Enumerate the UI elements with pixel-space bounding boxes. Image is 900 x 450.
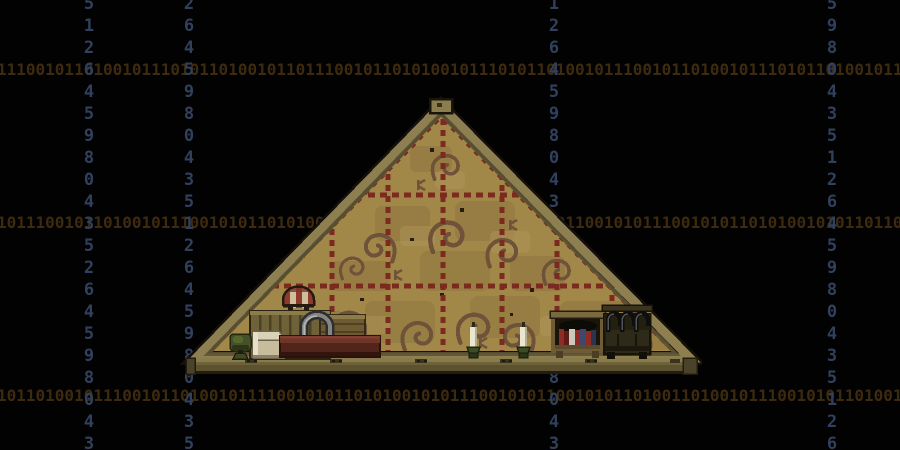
binary-row-bottom: 1011010010111001011010010111100101011010… <box>0 387 900 405</box>
red-bed[interactable] <box>280 336 380 357</box>
game-viewport: 1110010110100101110101101001011011100101… <box>0 0 900 450</box>
bookshelf[interactable] <box>550 311 605 358</box>
striped-canopy[interactable] <box>283 286 314 310</box>
tent-apex-cap <box>430 99 452 113</box>
books <box>559 329 596 345</box>
tent-floor <box>186 358 697 374</box>
binary-row-top: 1110010110100101110101101001011011100101… <box>0 61 900 79</box>
digit-column-1: 512645980435264598043512 <box>79 0 99 450</box>
digit-column-4: 598043512645980435126459 <box>822 0 842 450</box>
hook-rack[interactable] <box>602 305 652 359</box>
tent-structure <box>180 88 702 380</box>
